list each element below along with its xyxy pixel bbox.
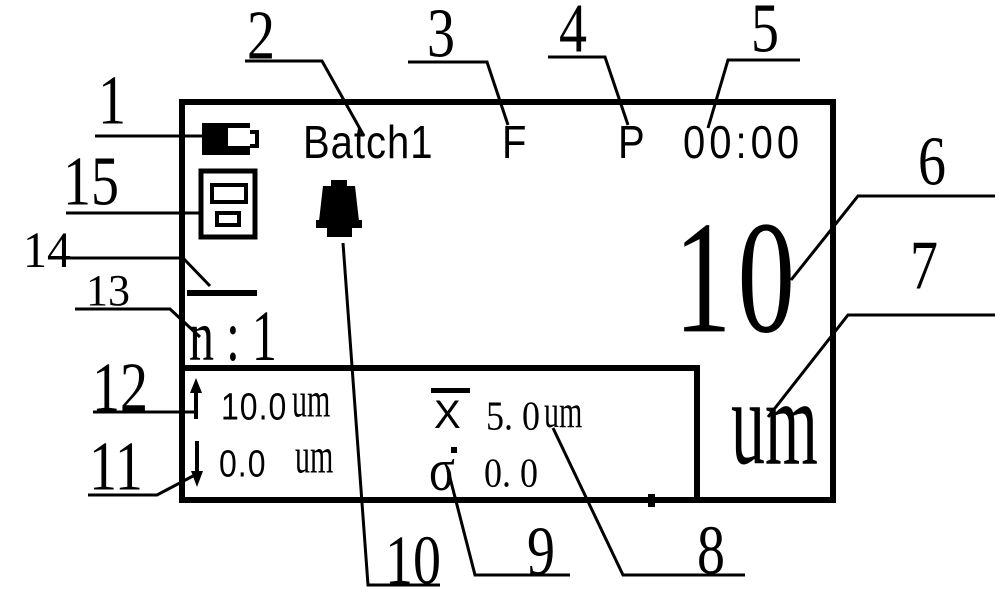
battery-icon	[202, 123, 259, 155]
lower-limit-value: 0.0	[219, 444, 266, 482]
border-joint	[648, 494, 655, 507]
mean-value: 5. 0	[486, 395, 540, 436]
bell-icon	[316, 180, 362, 237]
callout-1: 1	[98, 66, 126, 136]
time-display: 00:00	[683, 120, 803, 166]
sigma-symbol: σ	[429, 441, 455, 501]
lower-limit-unit: um	[295, 433, 333, 483]
callout-8: 8	[697, 516, 725, 586]
mean-symbol: X	[434, 395, 461, 435]
upper-limit-value: 10.0	[221, 387, 287, 425]
callout-3: 3	[427, 0, 455, 69]
callout-4: 4	[559, 0, 587, 64]
callout-9: 9	[527, 517, 555, 587]
callout-2: 2	[247, 1, 275, 71]
callout-5: 5	[751, 0, 779, 64]
callout-11: 11	[89, 432, 143, 502]
callout-13: 13	[86, 269, 130, 313]
arrow-down-icon	[191, 441, 203, 487]
leader-6	[791, 196, 995, 280]
reading-unit: um	[731, 361, 818, 483]
upper-limit-unit: um	[292, 377, 330, 427]
callout-7: 7	[910, 231, 938, 301]
count-label: n:1	[189, 299, 289, 372]
callout-14: 14	[23, 226, 71, 276]
display-diagram: Batch1 F P 00:00 10 um n:1 10.0 um 0.0 u…	[0, 0, 1001, 595]
mean-unit: um	[544, 390, 582, 437]
callout-12: 12	[92, 353, 148, 423]
leader-14	[62, 258, 210, 286]
flag-f: F	[502, 120, 526, 166]
callout-6: 6	[918, 127, 946, 197]
flag-p: P	[618, 120, 645, 166]
batch-label: Batch1	[303, 120, 434, 166]
sigma-value: 0. 0	[484, 452, 538, 493]
leader-3	[408, 62, 508, 125]
callout-10: 10	[385, 526, 441, 595]
callout-15: 15	[63, 147, 119, 217]
reading-value: 10	[674, 197, 801, 358]
printer-icon	[201, 171, 255, 237]
diagram-overlay	[0, 0, 1001, 595]
